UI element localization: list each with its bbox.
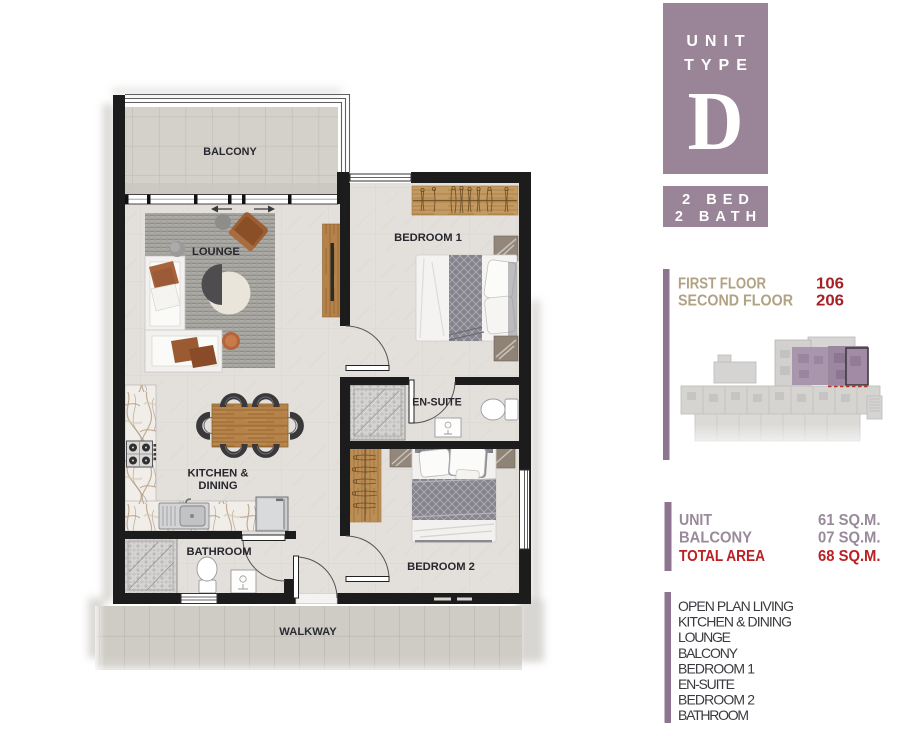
svg-text:BEDROOM 2: BEDROOM 2 — [407, 561, 475, 573]
svg-text:TOTAL AREA: TOTAL AREA — [679, 548, 765, 565]
svg-text:LOUNGE: LOUNGE — [678, 629, 731, 645]
svg-text:WALKWAY: WALKWAY — [279, 626, 337, 638]
svg-text:FIRST FLOOR: FIRST FLOOR — [678, 276, 766, 293]
svg-text:BALCONY: BALCONY — [678, 645, 739, 661]
svg-text:106: 106 — [816, 276, 844, 293]
svg-text:EN-SUITE: EN-SUITE — [412, 397, 461, 409]
svg-text:BEDROOM 2: BEDROOM 2 — [678, 692, 755, 708]
svg-text:68 SQ.M.: 68 SQ.M. — [818, 548, 881, 565]
svg-text:KITCHEN & DINING: KITCHEN & DINING — [678, 614, 792, 630]
svg-text:LOUNGE: LOUNGE — [192, 246, 240, 258]
svg-text:UNIT: UNIT — [679, 512, 712, 529]
svg-text:SECOND FLOOR: SECOND FLOOR — [678, 293, 793, 310]
svg-text:BALCONY: BALCONY — [203, 146, 257, 158]
svg-text:07 SQ.M.: 07 SQ.M. — [818, 529, 881, 546]
svg-text:BALCONY: BALCONY — [679, 529, 752, 546]
svg-text:BATHROOM: BATHROOM — [186, 546, 251, 558]
svg-text:EN-SUITE: EN-SUITE — [678, 676, 735, 692]
svg-text:BEDROOM 1: BEDROOM 1 — [678, 660, 755, 676]
svg-text:BEDROOM 1: BEDROOM 1 — [394, 232, 462, 244]
svg-text:206: 206 — [816, 293, 844, 310]
svg-text:KITCHEN &: KITCHEN & — [188, 468, 249, 480]
svg-text:BATHROOM: BATHROOM — [678, 707, 749, 723]
svg-text:DINING: DINING — [198, 480, 237, 492]
svg-text:OPEN PLAN LIVING: OPEN PLAN LIVING — [678, 598, 794, 614]
svg-text:61 SQ.M.: 61 SQ.M. — [818, 512, 881, 529]
